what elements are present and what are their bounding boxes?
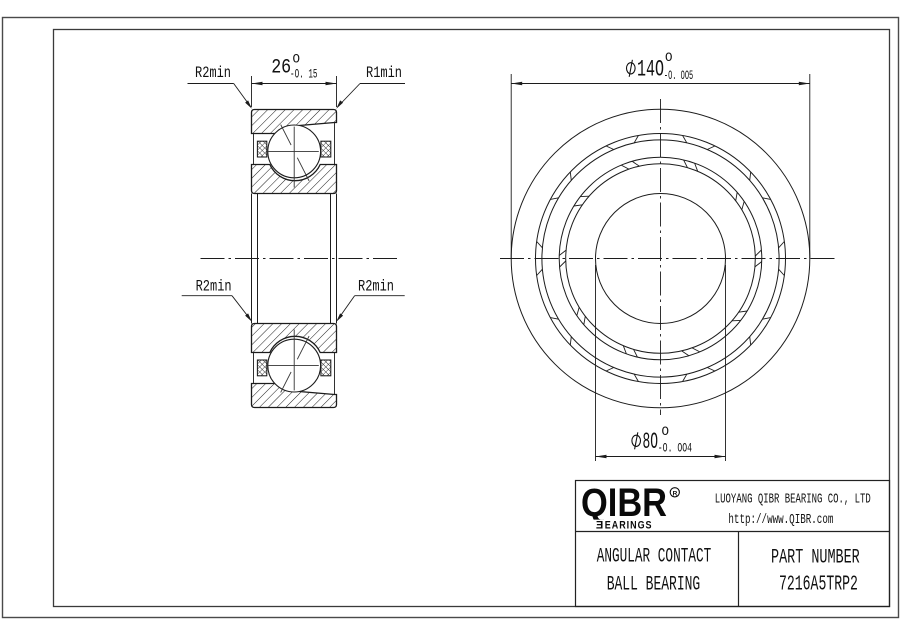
svg-text:14O: 14O: [637, 57, 664, 83]
svg-text:EARINGS: EARINGS: [605, 520, 653, 532]
svg-text:PART NUMBER: PART NUMBER: [771, 547, 860, 570]
svg-text:O: O: [293, 53, 301, 67]
svg-text:-O. 15: -O. 15: [290, 68, 318, 82]
svg-text:R: R: [673, 490, 678, 497]
svg-text:8O: 8O: [643, 429, 659, 455]
svg-text:7216A5TRP2: 7216A5TRP2: [779, 574, 858, 597]
svg-text:BALL BEARING: BALL BEARING: [607, 574, 701, 597]
svg-text:-O. OO5: -O. OO5: [664, 69, 693, 83]
svg-text:ANGULAR CONTACT: ANGULAR CONTACT: [597, 546, 711, 569]
svg-text:E: E: [596, 520, 603, 532]
svg-text:R2min: R2min: [358, 278, 394, 296]
svg-text:O: O: [665, 51, 673, 65]
svg-text:LUOYANG QIBR BEARING CO., LTD: LUOYANG QIBR BEARING CO., LTD: [715, 492, 871, 508]
svg-text:R1min: R1min: [366, 64, 402, 82]
svg-text:O: O: [662, 425, 670, 439]
svg-text:R2min: R2min: [195, 64, 231, 82]
svg-text:http://www.QIBR.com: http://www.QIBR.com: [728, 512, 833, 528]
svg-text:26: 26: [271, 57, 291, 80]
svg-text:R2min: R2min: [196, 278, 232, 296]
svg-text:-O. OO4: -O. OO4: [658, 442, 692, 456]
